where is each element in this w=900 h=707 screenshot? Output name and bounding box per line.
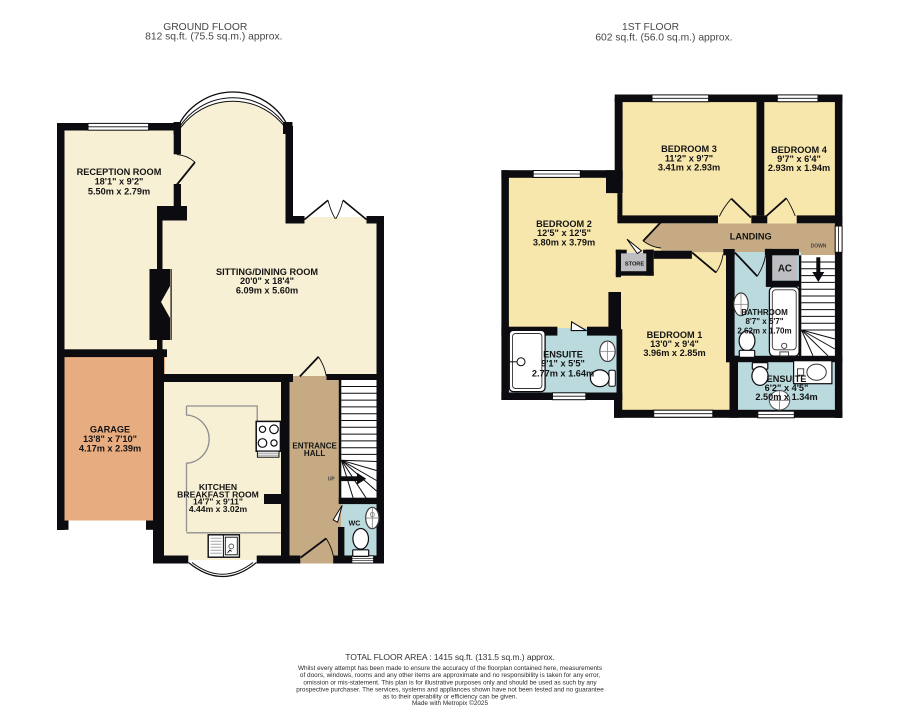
svg-text:omission or mis-statement. Thi: omission or mis-statement. This plan is …: [303, 679, 597, 686]
svg-text:3.80m x 3.79m: 3.80m x 3.79m: [533, 237, 595, 247]
svg-text:TOTAL FLOOR AREA : 1415 sq.ft.: TOTAL FLOOR AREA : 1415 sq.ft. (131.5 sq…: [345, 652, 555, 662]
svg-text:BATHROOM: BATHROOM: [741, 308, 788, 317]
svg-text:AC: AC: [778, 263, 792, 274]
svg-text:DOWN: DOWN: [811, 244, 827, 250]
svg-text:5.50m x 2.79m: 5.50m x 2.79m: [88, 187, 150, 197]
svg-text:UP: UP: [328, 477, 336, 483]
svg-text:3.41m x 2.93m: 3.41m x 2.93m: [658, 162, 720, 172]
svg-text:6.09m x 5.60m: 6.09m x 5.60m: [236, 286, 298, 296]
svg-text:2.77m x 1.64m: 2.77m x 1.64m: [532, 369, 594, 379]
svg-text:2.50m x 1.34m: 2.50m x 1.34m: [755, 392, 817, 402]
svg-text:9'1" x 5'5": 9'1" x 5'5": [541, 359, 585, 369]
svg-text:812 sq.ft. (75.5 sq.m.) approx: 812 sq.ft. (75.5 sq.m.) approx.: [145, 32, 282, 43]
svg-text:Made with Metropix ©2025: Made with Metropix ©2025: [412, 699, 489, 707]
svg-text:LANDING: LANDING: [730, 231, 772, 241]
svg-text:2.62m x 1.70m: 2.62m x 1.70m: [737, 326, 791, 335]
svg-text:3.96m x 2.85m: 3.96m x 2.85m: [643, 348, 705, 358]
svg-text:WC: WC: [349, 520, 361, 527]
svg-text:of doors, windows, rooms and a: of doors, windows, rooms and any other i…: [300, 672, 600, 679]
svg-text:20'0" x 18'4": 20'0" x 18'4": [240, 276, 294, 286]
svg-text:RECEPTION ROOM: RECEPTION ROOM: [77, 167, 162, 177]
svg-text:4.17m x 2.39m: 4.17m x 2.39m: [79, 444, 141, 454]
svg-text:HALL: HALL: [304, 449, 325, 458]
svg-text:Whilst every attempt has been: Whilst every attempt has been made to en…: [298, 665, 602, 672]
svg-text:4.44m x 3.02m: 4.44m x 3.02m: [189, 504, 248, 514]
svg-text:18'1" x 9'2": 18'1" x 9'2": [95, 177, 144, 187]
svg-text:prospective purchaser. The ser: prospective purchaser. The services, sys…: [296, 687, 604, 694]
svg-text:602 sq.ft. (56.0 sq.m.) approx: 602 sq.ft. (56.0 sq.m.) approx.: [595, 32, 732, 43]
svg-text:2.93m x 1.94m: 2.93m x 1.94m: [768, 163, 830, 173]
svg-text:STORE: STORE: [625, 262, 644, 268]
svg-text:8'7" x 5'7": 8'7" x 5'7": [745, 317, 783, 326]
